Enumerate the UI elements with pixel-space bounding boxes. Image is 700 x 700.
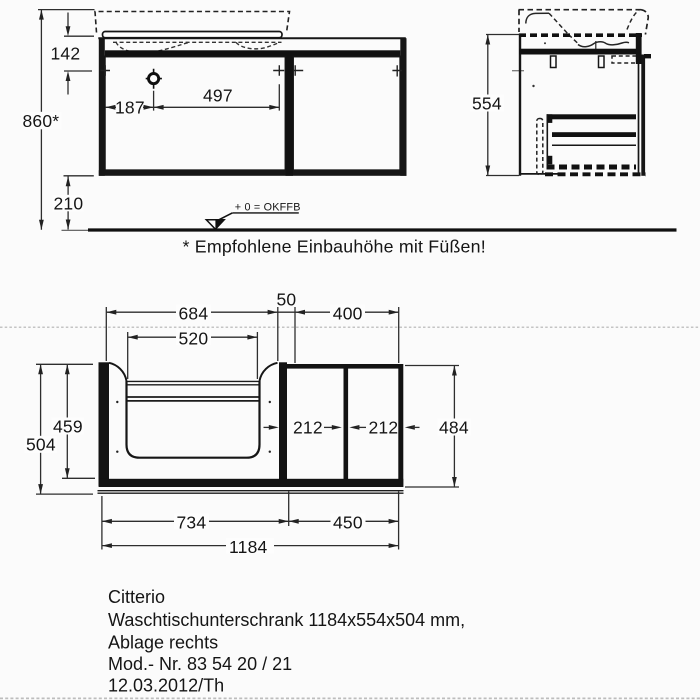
svg-text:520: 520 xyxy=(179,329,209,349)
svg-text:Ablage rechts: Ablage rechts xyxy=(108,632,218,652)
svg-text:484: 484 xyxy=(439,417,469,437)
svg-text:Mod.- Nr. 83 54 20 / 21: Mod.- Nr. 83 54 20 / 21 xyxy=(108,654,292,674)
svg-text:187: 187 xyxy=(115,98,145,118)
svg-text:684: 684 xyxy=(179,304,209,324)
svg-text:400: 400 xyxy=(333,304,363,324)
svg-text:Citterio: Citterio xyxy=(108,587,165,607)
svg-text:210: 210 xyxy=(54,193,84,213)
svg-text:450: 450 xyxy=(333,513,363,533)
svg-text:* Empfohlene Einbauhöhe mit Fü: * Empfohlene Einbauhöhe mit Füßen! xyxy=(183,236,486,256)
svg-text:12.03.2012/Th: 12.03.2012/Th xyxy=(108,675,224,695)
svg-text:860*: 860* xyxy=(23,111,60,131)
svg-text:554: 554 xyxy=(472,93,502,113)
svg-text:Waschtischunterschrank 1184x55: Waschtischunterschrank 1184x554x504 mm, xyxy=(108,610,465,630)
svg-text:212: 212 xyxy=(293,417,323,437)
svg-text:1184: 1184 xyxy=(229,537,267,557)
svg-text:734: 734 xyxy=(177,513,207,533)
svg-text:+ 0 = OKFFB: + 0 = OKFFB xyxy=(235,201,301,213)
svg-text:212: 212 xyxy=(369,417,399,437)
svg-text:142: 142 xyxy=(51,44,81,64)
svg-text:504: 504 xyxy=(26,435,56,455)
svg-text:497: 497 xyxy=(203,86,233,106)
svg-text:459: 459 xyxy=(53,416,83,436)
svg-text:50: 50 xyxy=(277,290,297,310)
